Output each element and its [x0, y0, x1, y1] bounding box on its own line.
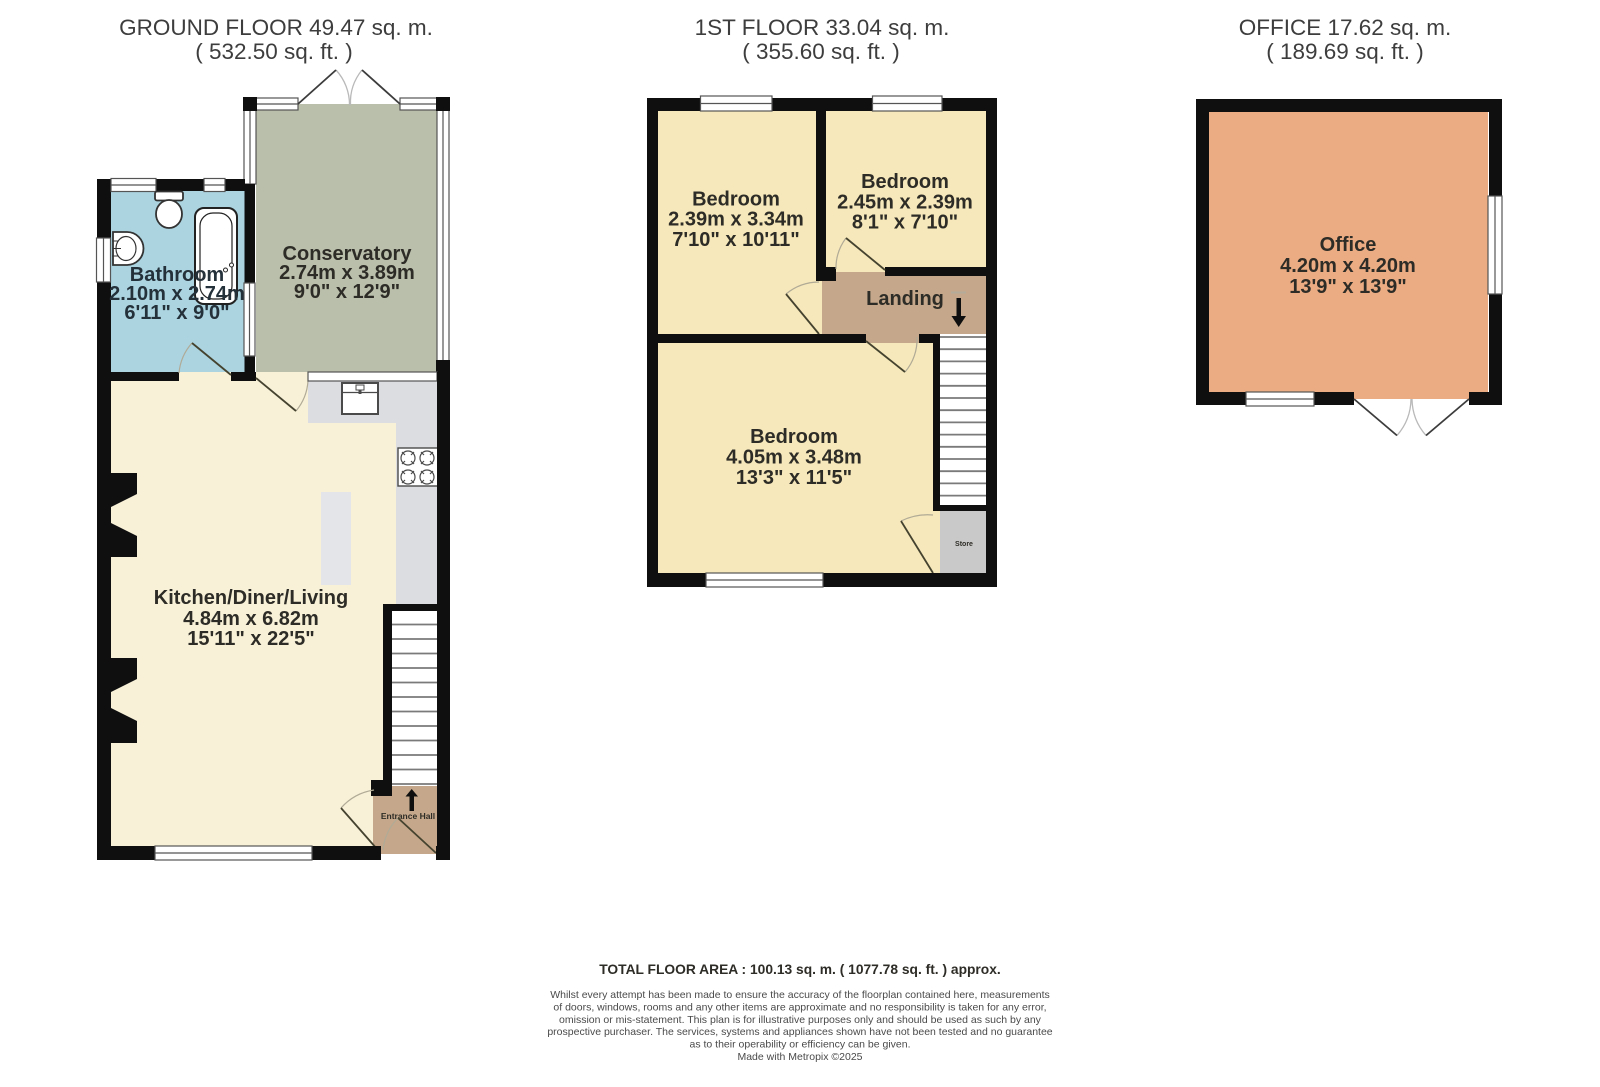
- svg-text:13'9" x 13'9": 13'9" x 13'9": [1289, 276, 1406, 298]
- svg-text:4.84m x 6.82m: 4.84m x 6.82m: [183, 608, 319, 630]
- svg-text:Office: Office: [1320, 234, 1377, 256]
- svg-text:6'11" x 9'0": 6'11" x 9'0": [124, 302, 229, 324]
- svg-text:Bedroom: Bedroom: [692, 189, 780, 211]
- svg-text:prospective purchaser. The ser: prospective purchaser. The services, sys…: [547, 1026, 1052, 1038]
- svg-text:Bedroom: Bedroom: [861, 171, 949, 193]
- svg-text:( 355.60 sq. ft. ): ( 355.60 sq. ft. ): [742, 39, 900, 64]
- svg-text:( 532.50 sq. ft. ): ( 532.50 sq. ft. ): [195, 39, 353, 64]
- svg-text:GROUND FLOOR 49.47 sq. m.: GROUND FLOOR 49.47 sq. m.: [119, 15, 433, 40]
- svg-text:Landing: Landing: [866, 288, 944, 310]
- svg-text:13'3" x 11'5": 13'3" x 11'5": [736, 467, 852, 489]
- svg-text:Whilst every attempt has been: Whilst every attempt has been made to en…: [550, 989, 1050, 1001]
- svg-text:4.05m x 3.48m: 4.05m x 3.48m: [726, 447, 862, 469]
- svg-text:Kitchen/Diner/Living: Kitchen/Diner/Living: [154, 587, 348, 609]
- svg-text:9'0" x 12'9": 9'0" x 12'9": [294, 281, 400, 303]
- svg-text:Entrance Hall: Entrance Hall: [381, 811, 435, 821]
- svg-text:Bedroom: Bedroom: [750, 426, 838, 448]
- svg-text:omission or mis-statement. Thi: omission or mis-statement. This plan is …: [559, 1014, 1042, 1026]
- svg-text:2.45m x 2.39m: 2.45m x 2.39m: [837, 192, 973, 214]
- svg-text:8'1" x 7'10": 8'1" x 7'10": [852, 212, 958, 234]
- svg-text:of doors, windows, rooms and a: of doors, windows, rooms and any other i…: [553, 1001, 1046, 1013]
- svg-text:( 189.69 sq. ft. ): ( 189.69 sq. ft. ): [1266, 39, 1424, 64]
- svg-text:as to their operability or eff: as to their operability or efficiency ca…: [689, 1039, 910, 1051]
- svg-text:15'11" x 22'5": 15'11" x 22'5": [187, 628, 314, 650]
- svg-text:1ST FLOOR 33.04 sq. m.: 1ST FLOOR 33.04 sq. m.: [695, 15, 950, 40]
- svg-text:7'10" x 10'11": 7'10" x 10'11": [672, 229, 799, 251]
- svg-text:TOTAL FLOOR AREA : 100.13 sq.: TOTAL FLOOR AREA : 100.13 sq. m. ( 1077.…: [599, 962, 1000, 977]
- svg-text:OFFICE 17.62 sq. m.: OFFICE 17.62 sq. m.: [1239, 15, 1452, 40]
- svg-text:2.39m x 3.34m: 2.39m x 3.34m: [668, 209, 804, 231]
- svg-text:4.20m x 4.20m: 4.20m x 4.20m: [1280, 255, 1416, 277]
- svg-text:Store: Store: [955, 541, 973, 548]
- svg-text:Made with Metropix ©2025: Made with Metropix ©2025: [737, 1051, 862, 1063]
